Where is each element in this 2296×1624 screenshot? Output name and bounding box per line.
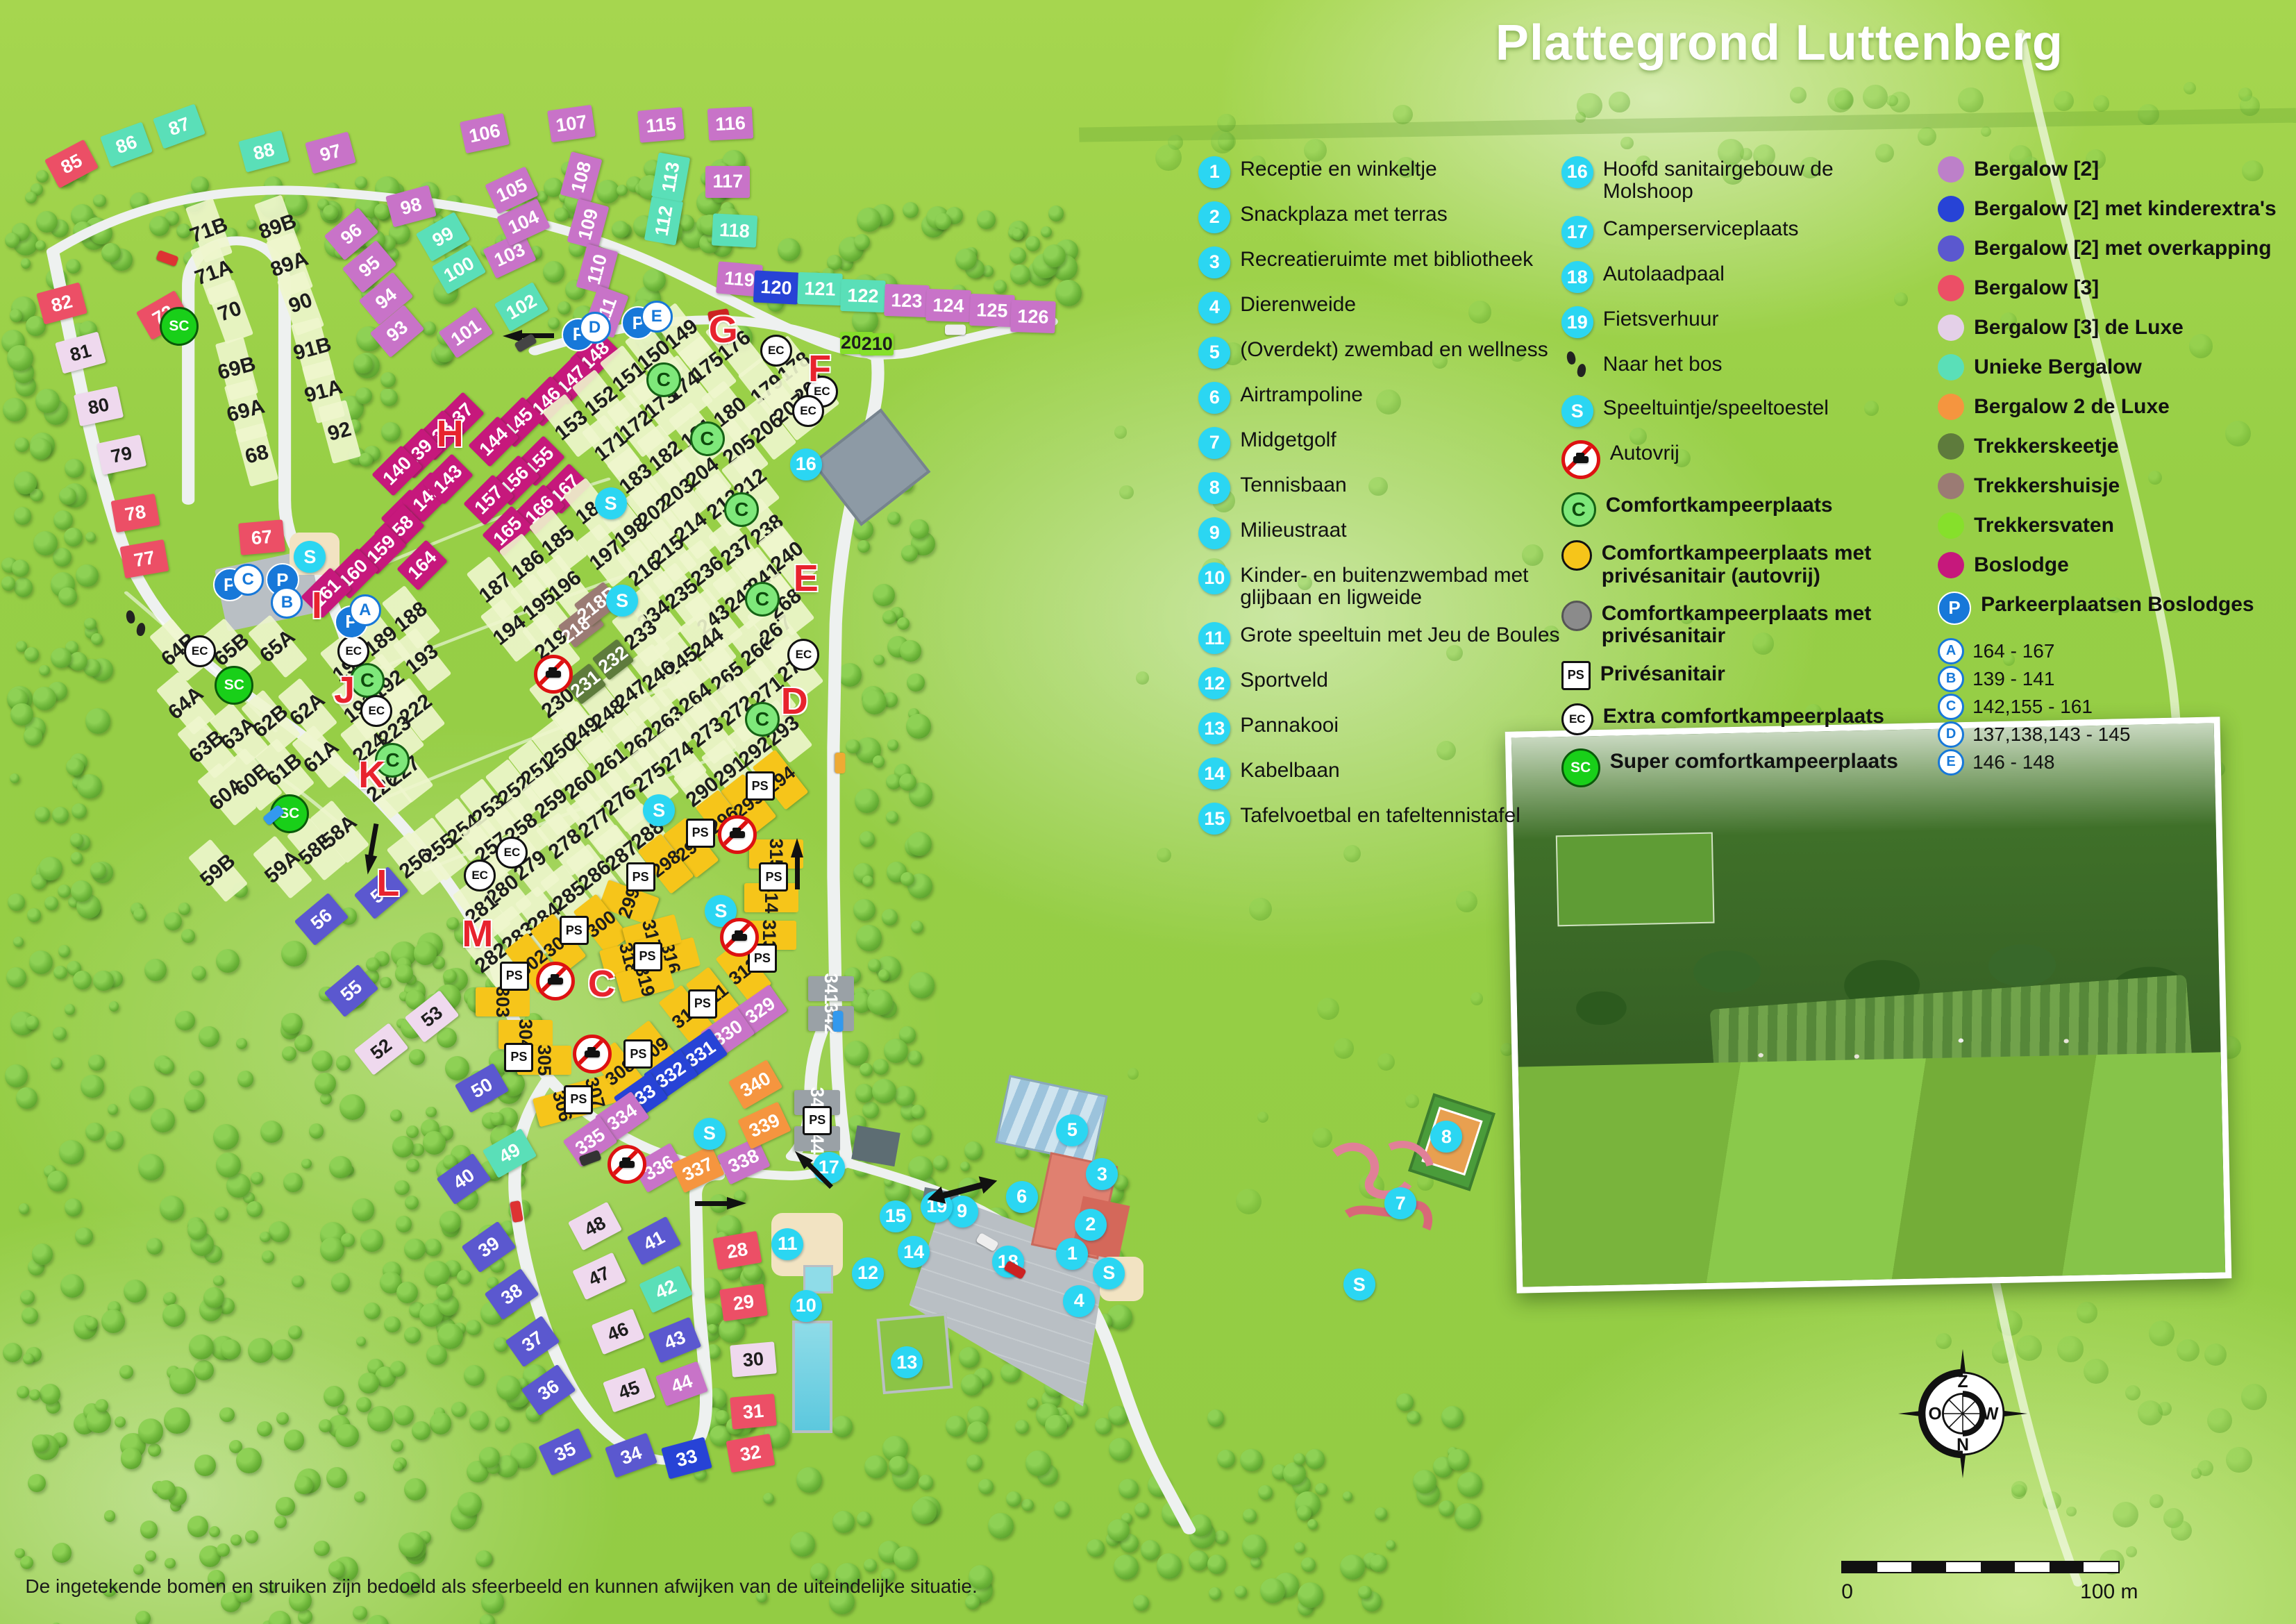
facility-marker-4[interactable]: 4 <box>1063 1285 1095 1317</box>
extra-comfort-icon[interactable]: EC <box>464 860 496 891</box>
legend-facility-10-label: Kinder- en buitenzwembad met glijbaan en… <box>1240 562 1566 610</box>
playground-icon[interactable]: S <box>595 487 627 519</box>
scale-segment <box>2015 1562 2050 1572</box>
legend-accommodation-7-label: Trekkerskeetje <box>1974 433 2119 458</box>
legend-facility-2-icon: 2 <box>1198 201 1230 233</box>
legend-symbol-2-icon <box>1561 440 1600 479</box>
legend-symbol-4-label: Comfortkampeerplaats met privésanitair (… <box>1602 540 1928 587</box>
legend-facility-13-label: Pannakooi <box>1240 712 1339 737</box>
private-sanitair-icon[interactable]: PS <box>626 862 655 891</box>
legend-facility-1-label: Receptie en winkeltje <box>1240 156 1437 181</box>
legend-accommodation-0-icon <box>1938 156 1964 183</box>
legend-symbol-1-icon: S <box>1561 395 1593 427</box>
facility-marker-6[interactable]: 6 <box>1006 1181 1038 1213</box>
parking-range-D: 137,138,143 - 145 <box>1972 723 2130 746</box>
plot-107[interactable]: 107 <box>548 105 596 142</box>
plot-115[interactable]: 115 <box>638 107 685 142</box>
private-sanitair-icon[interactable]: PS <box>686 819 715 848</box>
legend-parking-A: A164 - 167 <box>1938 638 2296 664</box>
facility-marker-12[interactable]: 12 <box>852 1257 884 1289</box>
legend-facility-19-icon: 19 <box>1561 306 1593 338</box>
legend-facility-14: 14Kabelbaan <box>1198 757 1566 789</box>
legend-symbol-5: Comfortkampeerplaats met privésanitair <box>1561 601 1950 648</box>
legend-facility-11: 11Grote speeltuin met Jeu de Boules <box>1198 622 1566 654</box>
legend-symbol-1: SSpeeltuintje/speeltoestel <box>1561 395 1950 427</box>
facility-marker-1[interactable]: 1 <box>1056 1238 1088 1270</box>
playground-icon[interactable]: S <box>294 541 326 573</box>
legend-symbol-0-icon <box>1561 351 1593 382</box>
parking-letter-C[interactable]: C <box>232 564 264 596</box>
legend-symbol-1-label: Speeltuintje/speeltoestel <box>1603 395 1829 419</box>
super-comfort-icon[interactable]: SC <box>160 307 199 346</box>
plot-117[interactable]: 117 <box>705 166 750 198</box>
private-sanitair-icon[interactable]: PS <box>803 1106 832 1135</box>
legend-facility-13-icon: 13 <box>1198 712 1230 744</box>
legend-facility-15-icon: 15 <box>1198 803 1230 835</box>
scale-segment <box>1981 1562 2016 1572</box>
legend-accommodation-0-label: Bergalow [2] <box>1974 156 2099 181</box>
legend-accommodation-4-label: Bergalow [3] de Luxe <box>1974 315 2184 339</box>
legend-facility-3-icon: 3 <box>1198 246 1230 278</box>
legend-symbol-8: SCSuper comfortkampeerplaats <box>1561 748 1950 787</box>
legend-facility-18-label: Autolaadpaal <box>1603 261 1725 285</box>
section-letter-G: G <box>709 308 738 351</box>
legend-facility-16: 16Hoofd sanitairgebouw de Molshoop <box>1561 156 1950 203</box>
shed-15 <box>851 1125 900 1166</box>
legend-facility-18-icon: 18 <box>1561 261 1593 293</box>
legend-facility-5-label: (Overdekt) zwembad en wellness <box>1240 337 1548 361</box>
legend-facility-12-icon: 12 <box>1198 667 1230 699</box>
playground-icon[interactable]: S <box>606 585 638 617</box>
facility-marker-11[interactable]: 11 <box>771 1228 803 1260</box>
legend-accommodation-10-icon <box>1938 552 1964 578</box>
legend-symbol-8-icon: SC <box>1561 748 1600 787</box>
legend-symbols: 16Hoofd sanitairgebouw de Molshoop17Camp… <box>1561 156 1950 801</box>
legend-accommodation-10: Boslodge <box>1938 552 2296 578</box>
legend-symbol-2: Autovrij <box>1561 440 1950 479</box>
legend-facility-4-label: Dierenweide <box>1240 292 1356 316</box>
legend-symbol-2-label: Autovrij <box>1610 440 1679 464</box>
legend-facility-11-label: Grote speeltuin met Jeu de Boules <box>1240 622 1559 646</box>
playground-icon[interactable]: S <box>643 794 675 826</box>
legend-facility-12-label: Sportveld <box>1240 667 1328 692</box>
legend-symbol-7-icon: EC <box>1561 703 1593 735</box>
plot-210[interactable]: 210 <box>860 333 894 355</box>
legend-symbol-5-label: Comfortkampeerplaats met privésanitair <box>1602 601 1928 648</box>
plot-124[interactable]: 124 <box>925 289 971 322</box>
plot-122[interactable]: 122 <box>841 279 887 312</box>
facility-marker-10[interactable]: 10 <box>790 1290 822 1322</box>
legend-accommodation-6-icon <box>1938 394 1964 420</box>
extra-comfort-icon[interactable]: EC <box>360 695 392 727</box>
no-car-icon[interactable] <box>720 918 759 957</box>
legend-accommodation-4: Bergalow [3] de Luxe <box>1938 315 2296 341</box>
legend-accommodation-7-icon <box>1938 433 1964 460</box>
legend-facility-9-label: Milieustraat <box>1240 517 1346 542</box>
scale-segment <box>1911 1562 1946 1572</box>
scale-end: 100 m <box>2080 1580 2138 1604</box>
legend-facility-2: 2Snackplaza met terras <box>1198 201 1566 233</box>
legend-facility-19-label: Fietsverhuur <box>1603 306 1719 330</box>
extra-comfort-icon[interactable]: EC <box>760 335 792 367</box>
legend-accommodation-1-label: Bergalow [2] met kinderextra's <box>1974 196 2277 220</box>
private-sanitair-icon[interactable]: PS <box>633 942 662 971</box>
comfort-icon[interactable]: C <box>745 702 780 737</box>
plot-29[interactable]: 29 <box>720 1284 769 1321</box>
section-letter-E: E <box>794 557 819 600</box>
private-sanitair-icon[interactable]: PS <box>746 771 775 801</box>
legend-accommodation-1-icon <box>1938 196 1964 222</box>
playground-icon[interactable]: S <box>1343 1269 1375 1300</box>
legend-facility-8: 8Tennisbaan <box>1198 472 1566 504</box>
plot-341[interactable]: 341 <box>808 976 854 1001</box>
private-sanitair-icon[interactable]: PS <box>759 862 788 891</box>
legend-parking-title-label: Parkeerplaatsen Boslodges <box>1981 592 2254 616</box>
legend-symbol-4-icon <box>1561 540 1592 571</box>
legend-accommodation-1: Bergalow [2] met kinderextra's <box>1938 196 2296 222</box>
plot-303[interactable]: 303 <box>476 987 530 1016</box>
legend-accommodation-5-label: Unieke Bergalow <box>1974 354 2142 378</box>
parking-range-B: 139 - 141 <box>1972 668 2054 690</box>
legend-facility-16-icon: 16 <box>1561 156 1593 188</box>
legend-symbol-3-label: Comfortkampeerplaats <box>1606 492 1833 517</box>
legend-accommodation-0: Bergalow [2] <box>1938 156 2296 183</box>
playground-icon[interactable]: S <box>694 1118 726 1150</box>
legend-parking-title-icon: P <box>1938 592 1971 625</box>
facility-marker-13[interactable]: 13 <box>891 1346 923 1378</box>
plot-342[interactable]: 342 <box>808 1006 854 1031</box>
legend-facility-7: 7Midgetgolf <box>1198 427 1566 459</box>
legend-symbol-0-label: Naar het bos <box>1603 351 1723 376</box>
plot-116[interactable]: 116 <box>707 106 753 140</box>
photo-fields <box>1518 1053 2225 1287</box>
scale-start: 0 <box>1841 1580 1853 1604</box>
car-icon <box>945 324 966 335</box>
legend-accommodation-5: Unieke Bergalow <box>1938 354 2296 380</box>
plot-120[interactable]: 120 <box>753 270 799 304</box>
legend-facility-2-label: Snackplaza met terras <box>1240 201 1447 226</box>
legend-facility-14-label: Kabelbaan <box>1240 757 1339 782</box>
legend-facility-19: 19Fietsverhuur <box>1561 306 1950 338</box>
legend-accommodation-3: Bergalow [3] <box>1938 275 2296 301</box>
legend-accommodation-6-label: Bergalow 2 de Luxe <box>1974 394 2170 418</box>
facility-marker-7[interactable]: 7 <box>1384 1187 1416 1219</box>
plot-121[interactable]: 121 <box>797 272 843 305</box>
legend-symbol-5-icon <box>1561 601 1592 631</box>
extra-comfort-icon[interactable]: EC <box>184 635 216 667</box>
legend-facility-17-icon: 17 <box>1561 216 1593 248</box>
parking-letter-C-icon: C <box>1938 694 1964 720</box>
section-letter-C: C <box>588 962 615 1005</box>
compass-right: W <box>1982 1405 1999 1424</box>
legend-facility-12: 12Sportveld <box>1198 667 1566 699</box>
legend-facility-9-icon: 9 <box>1198 517 1230 549</box>
legend-symbol-8-label: Super comfortkampeerplaats <box>1610 748 1898 773</box>
section-letter-H: H <box>437 412 464 455</box>
legend-facility-6-label: Airtrampoline <box>1240 382 1363 406</box>
parking-letter-E-icon: E <box>1938 749 1964 776</box>
plot-123[interactable]: 123 <box>884 284 930 317</box>
legend-symbol-7: ECExtra comfortkampeerplaats <box>1561 703 1950 735</box>
no-car-icon[interactable] <box>534 655 573 694</box>
legend-facility-6-icon: 6 <box>1198 382 1230 414</box>
legend-accommodation-10-label: Boslodge <box>1974 552 2069 576</box>
legend-facility-17: 17Camperserviceplaats <box>1561 216 1950 248</box>
scale-segment <box>1843 1562 1877 1572</box>
facility-marker-14[interactable]: 14 <box>898 1236 930 1268</box>
extra-comfort-icon[interactable]: EC <box>792 395 824 427</box>
legend-facility-11-icon: 11 <box>1198 622 1230 654</box>
legend-parking-E: E146 - 148 <box>1938 749 2296 776</box>
private-sanitair-icon[interactable]: PS <box>560 916 589 945</box>
legend-facility-5-icon: 5 <box>1198 337 1230 369</box>
no-car-icon[interactable] <box>607 1145 646 1184</box>
legend-facility-15-label: Tafelvoetbal en tafeltennistafel <box>1240 803 1520 827</box>
legend-symbol-6-label: Privésanitair <box>1600 661 1725 685</box>
legend-facility-10: 10Kinder- en buitenzwembad met glijbaan … <box>1198 562 1566 610</box>
legend-symbol-3-icon: C <box>1561 492 1596 527</box>
facility-marker-2[interactable]: 2 <box>1075 1209 1107 1241</box>
section-letter-J: J <box>334 669 355 712</box>
direction-arrow-icon <box>791 838 803 889</box>
compass-rose: Z N O W <box>1897 1348 2029 1480</box>
legend-accommodation-4-icon <box>1938 315 1964 341</box>
playground-icon[interactable]: S <box>1093 1257 1125 1289</box>
legend-facility-1-icon: 1 <box>1198 156 1230 188</box>
legend-parking-C: C142,155 - 161 <box>1938 694 2296 720</box>
section-letter-F: F <box>808 347 831 390</box>
car-icon <box>835 753 846 773</box>
parking-range-C: 142,155 - 161 <box>1972 696 2093 718</box>
outdoor-pool <box>792 1321 832 1433</box>
plot-118[interactable]: 118 <box>712 213 757 247</box>
comfort-icon[interactable]: C <box>724 492 759 527</box>
private-sanitair-icon[interactable]: PS <box>688 989 717 1019</box>
legend-facility-14-icon: 14 <box>1198 757 1230 789</box>
compass-bottom: N <box>1956 1437 1969 1455</box>
plot-125[interactable]: 125 <box>969 294 1015 327</box>
facility-marker-8[interactable]: 8 <box>1430 1121 1462 1153</box>
legend-parking-D: D137,138,143 - 145 <box>1938 721 2296 748</box>
private-sanitair-icon[interactable]: PS <box>500 962 529 991</box>
legend-facility-6: 6Airtrampoline <box>1198 382 1566 414</box>
legend-accommodation-2: Bergalow [2] met overkapping <box>1938 235 2296 262</box>
legend-facility-17-label: Camperserviceplaats <box>1603 216 1799 240</box>
legend-facility-9: 9Milieustraat <box>1198 517 1566 549</box>
section-letter-K: K <box>358 753 385 796</box>
legend-parking-title: PParkeerplaatsen Boslodges <box>1938 592 2296 625</box>
legend-accommodation-8-icon <box>1938 473 1964 499</box>
facility-marker-3[interactable]: 3 <box>1086 1158 1118 1190</box>
legend-symbol-6-icon: PS <box>1561 661 1591 690</box>
legend-symbol-7-label: Extra comfortkampeerplaats <box>1603 703 1884 728</box>
legend-facility-1: 1Receptie en winkeltje <box>1198 156 1566 188</box>
legend-facility-4: 4Dierenweide <box>1198 292 1566 324</box>
facility-marker-5[interactable]: 5 <box>1056 1114 1088 1146</box>
legend-facility-3: 3Recreatieruimte met bibliotheek <box>1198 246 1566 278</box>
legend-symbol-4: Comfortkampeerplaats met privésanitair (… <box>1561 540 1950 587</box>
legend-accommodation-7: Trekkerskeetje <box>1938 433 2296 460</box>
legend-facility-8-icon: 8 <box>1198 472 1230 504</box>
parking-letter-E[interactable]: E <box>641 301 673 333</box>
parking-letter-A[interactable]: A <box>349 594 381 626</box>
section-letter-D: D <box>781 680 808 723</box>
scale-segment <box>2050 1562 2084 1572</box>
facility-marker-15[interactable]: 15 <box>880 1200 912 1232</box>
legend-facility-15: 15Tafelvoetbal en tafeltennistafel <box>1198 803 1566 835</box>
direction-arrow-icon <box>695 1197 746 1209</box>
facility-marker-16[interactable]: 16 <box>790 449 822 480</box>
legend-facility-7-label: Midgetgolf <box>1240 427 1336 451</box>
car-icon <box>833 1011 844 1032</box>
super-comfort-icon[interactable]: SC <box>215 666 253 705</box>
plot-67[interactable]: 67 <box>238 520 285 555</box>
legend-accommodation-5-icon <box>1938 354 1964 380</box>
parking-letter-B-icon: B <box>1938 666 1964 692</box>
legend-symbol-0: Naar het bos <box>1561 351 1950 382</box>
legend-accommodation-8-label: Trekkershuisje <box>1974 473 2120 497</box>
parking-letter-A-icon: A <box>1938 638 1964 664</box>
aerial-photo <box>1505 717 2232 1293</box>
private-sanitair-icon[interactable]: PS <box>504 1043 533 1072</box>
legend-facility-16-label: Hoofd sanitairgebouw de Molshoop <box>1603 156 1929 203</box>
scale-segment <box>1946 1562 1981 1572</box>
minigolf-course <box>1321 1129 1447 1250</box>
legend-facility-18: 18Autolaadpaal <box>1561 261 1950 293</box>
legend-accommodation-9: Trekkersvaten <box>1938 512 2296 539</box>
footsteps-icon <box>126 610 147 641</box>
legend-facility-8-label: Tennisbaan <box>1240 472 1346 496</box>
map-canvas: Plattegrond Luttenberg 1Receptie en wink… <box>0 0 2296 1624</box>
scale-segment <box>2084 1562 2118 1572</box>
scale-segment <box>1877 1562 1912 1572</box>
legend-facility-3-label: Recreatieruimte met bibliotheek <box>1240 246 1533 271</box>
extra-comfort-icon[interactable]: EC <box>787 639 819 671</box>
section-letter-I: I <box>312 584 322 627</box>
comfort-icon[interactable]: C <box>350 663 385 698</box>
legend-facility-7-icon: 7 <box>1198 427 1230 459</box>
legend-facility-5: 5(Overdekt) zwembad en wellness <box>1198 337 1566 369</box>
legend-accommodation-2-label: Bergalow [2] met overkapping <box>1974 235 2271 260</box>
comfort-icon[interactable]: C <box>690 421 725 456</box>
parking-range-E: 146 - 148 <box>1972 751 2054 773</box>
legend-facilities: 1Receptie en winkeltje2Snackplaza met te… <box>1198 156 1566 848</box>
parking-letter-D[interactable]: D <box>579 312 611 344</box>
legend-accommodation-3-label: Bergalow [3] <box>1974 275 2099 299</box>
legend-accommodation-2-icon <box>1938 235 1964 262</box>
extra-comfort-icon[interactable]: EC <box>496 837 528 869</box>
no-car-icon[interactable] <box>536 962 575 1001</box>
section-letter-M: M <box>462 912 493 955</box>
footer-note: De ingetekende bomen en struiken zijn be… <box>25 1575 977 1598</box>
legend-accommodation-6: Bergalow 2 de Luxe <box>1938 394 2296 420</box>
section-letter-L: L <box>376 862 399 905</box>
legend-accommodations: Bergalow [2]Bergalow [2] met kinderextra… <box>1938 156 2296 777</box>
parking-letter-B[interactable]: B <box>271 587 303 619</box>
page-title: Plattegrond Luttenberg <box>1309 15 2250 72</box>
no-car-icon[interactable] <box>573 1035 612 1073</box>
photo-sportfield <box>1556 832 1715 926</box>
legend-facility-10-icon: 10 <box>1198 562 1230 594</box>
parking-letter-D-icon: D <box>1938 721 1964 748</box>
comfort-icon[interactable]: C <box>745 582 780 617</box>
legend-accommodation-3-icon <box>1938 275 1964 301</box>
compass-left: O <box>1928 1405 1941 1424</box>
plot-31[interactable]: 31 <box>730 1393 777 1429</box>
legend-accommodation-9-label: Trekkersvaten <box>1974 512 2114 537</box>
legend-symbol-6: PSPrivésanitair <box>1561 661 1950 690</box>
extra-comfort-icon[interactable]: EC <box>337 635 369 667</box>
scale-bar <box>1841 1561 2120 1573</box>
legend-accommodation-9-icon <box>1938 512 1964 539</box>
plot-126[interactable]: 126 <box>1010 300 1056 333</box>
plot-30[interactable]: 30 <box>730 1341 777 1377</box>
legend-accommodation-8: Trekkershuisje <box>1938 473 2296 499</box>
no-car-icon[interactable] <box>718 815 757 854</box>
parking-range-A: 164 - 167 <box>1972 640 2054 662</box>
legend-facility-4-icon: 4 <box>1198 292 1230 324</box>
private-sanitair-icon[interactable]: PS <box>623 1039 653 1069</box>
legend-facility-13: 13Pannakooi <box>1198 712 1566 744</box>
compass-top: Z <box>1957 1373 1968 1391</box>
legend-symbol-3: CComfortkampeerplaats <box>1561 492 1950 527</box>
private-sanitair-icon[interactable]: PS <box>564 1085 593 1114</box>
legend-parking-B: B139 - 141 <box>1938 666 2296 692</box>
comfort-icon[interactable]: C <box>646 362 681 397</box>
